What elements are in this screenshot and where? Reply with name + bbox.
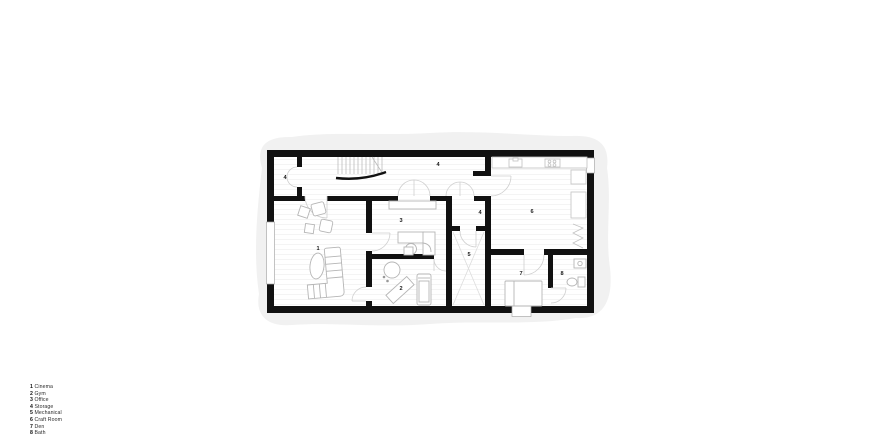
legend-item-number: 6 <box>30 417 33 423</box>
legend-item-name: Bath <box>35 430 46 436</box>
legend-item-number: 5 <box>30 410 33 416</box>
room-legend: 1Cinema 2Gym 3Office 4Storage 5Mechanica… <box>30 384 62 437</box>
legend-item-number: 3 <box>30 397 33 403</box>
room-label-bath: 8 <box>560 271 563 277</box>
room-label-den: 7 <box>519 271 522 277</box>
legend-item-name: Craft Room <box>35 417 63 423</box>
legend-item-name: Cinema <box>35 384 53 390</box>
legend-item-number: 8 <box>30 430 33 436</box>
floor-plan-drawing: 1 2 3 4 4 4 5 6 7 8 <box>0 0 870 440</box>
legend-item-number: 2 <box>30 391 33 397</box>
floor-plan-page: 1 2 3 4 4 4 5 6 7 8 1Cinema 2Gym 3Office… <box>0 0 870 440</box>
legend-item-name: Den <box>35 424 45 430</box>
legend-item-name: Gym <box>35 391 46 397</box>
legend-item-number: 4 <box>30 404 33 410</box>
room-label-gym: 2 <box>399 286 402 292</box>
legend-item: 5Mechanical <box>30 410 62 417</box>
legend-item: 4Storage <box>30 404 62 411</box>
legend-item: 3Office <box>30 397 62 404</box>
legend-item-number: 7 <box>30 424 33 430</box>
legend-item: 6Craft Room <box>30 417 62 424</box>
legend-item: 8Bath <box>30 430 62 437</box>
legend-item-number: 1 <box>30 384 33 390</box>
room-label-cinema: 1 <box>316 246 319 252</box>
legend-item-name: Mechanical <box>35 410 62 416</box>
legend-item-name: Storage <box>35 404 54 410</box>
legend-item: 1Cinema <box>30 384 62 391</box>
room-label-craft-room: 6 <box>530 209 533 215</box>
legend-item: 2Gym <box>30 391 62 398</box>
den-furniture <box>505 281 542 306</box>
room-label-office: 3 <box>399 218 402 224</box>
room-label-mechanical: 5 <box>467 252 470 258</box>
legend-item: 7Den <box>30 424 62 431</box>
legend-item-name: Office <box>35 397 49 403</box>
